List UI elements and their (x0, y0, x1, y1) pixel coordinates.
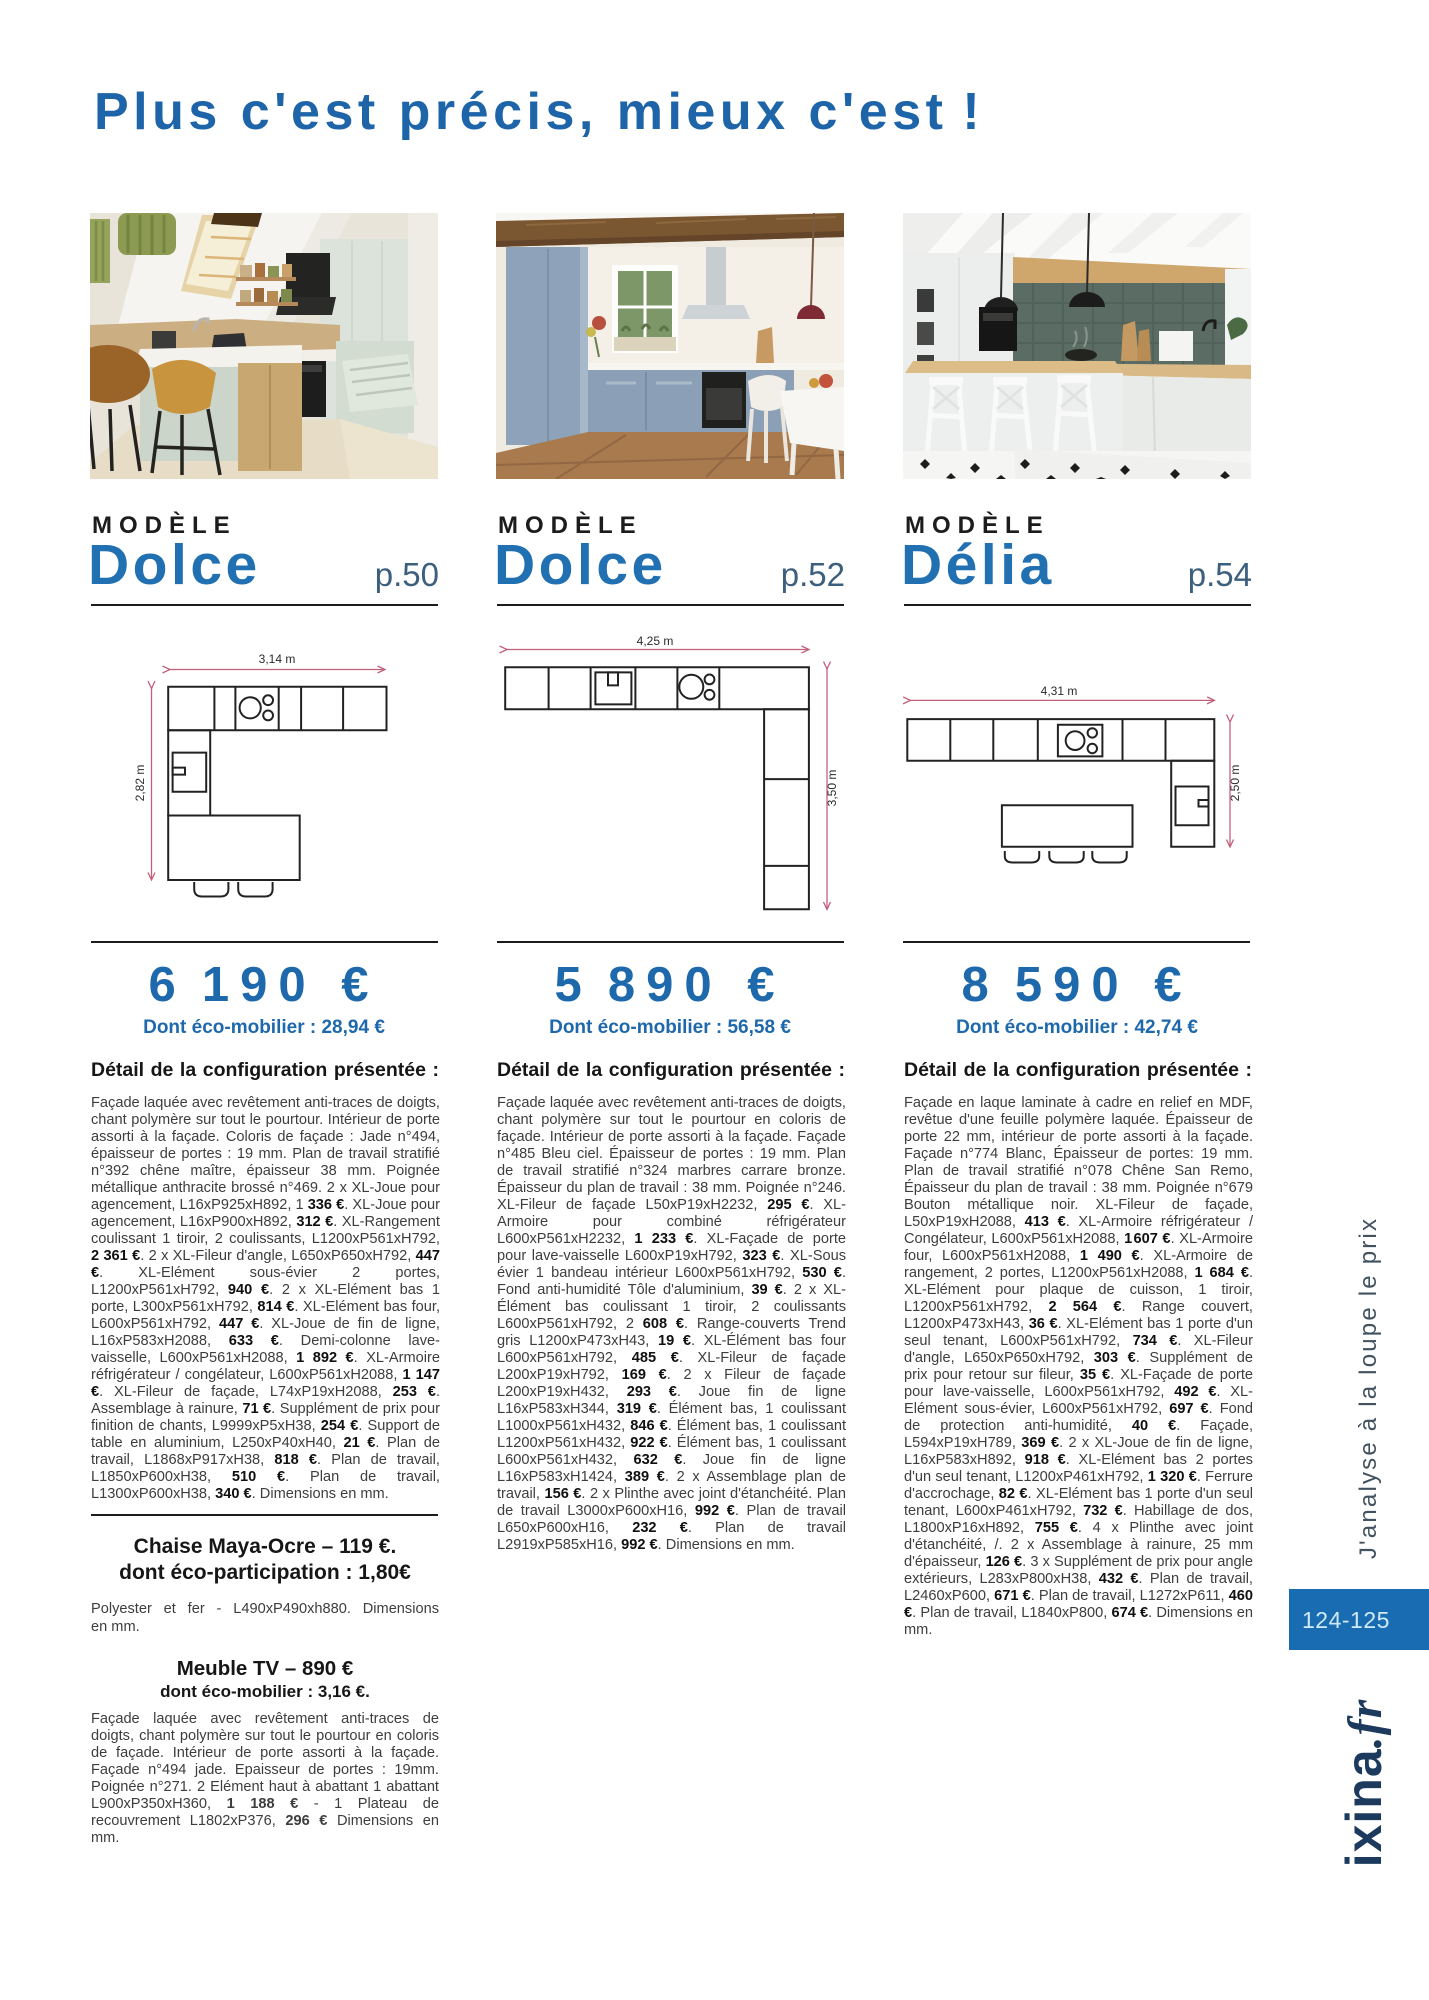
svg-text:4,31 m: 4,31 m (1041, 684, 1078, 698)
svg-text:2,82 m: 2,82 m (133, 765, 147, 802)
svg-text:4,25 m: 4,25 m (637, 634, 674, 648)
svg-text:3,14 m: 3,14 m (259, 652, 296, 666)
